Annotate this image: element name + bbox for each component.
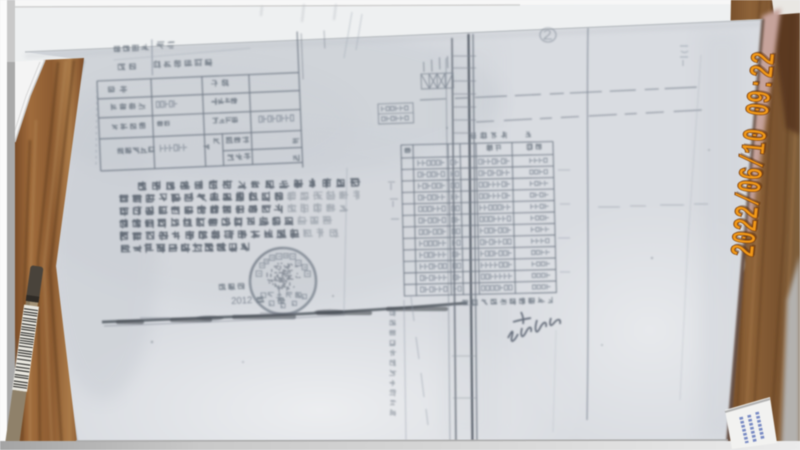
svg-text:2012: 2012: [231, 295, 253, 307]
